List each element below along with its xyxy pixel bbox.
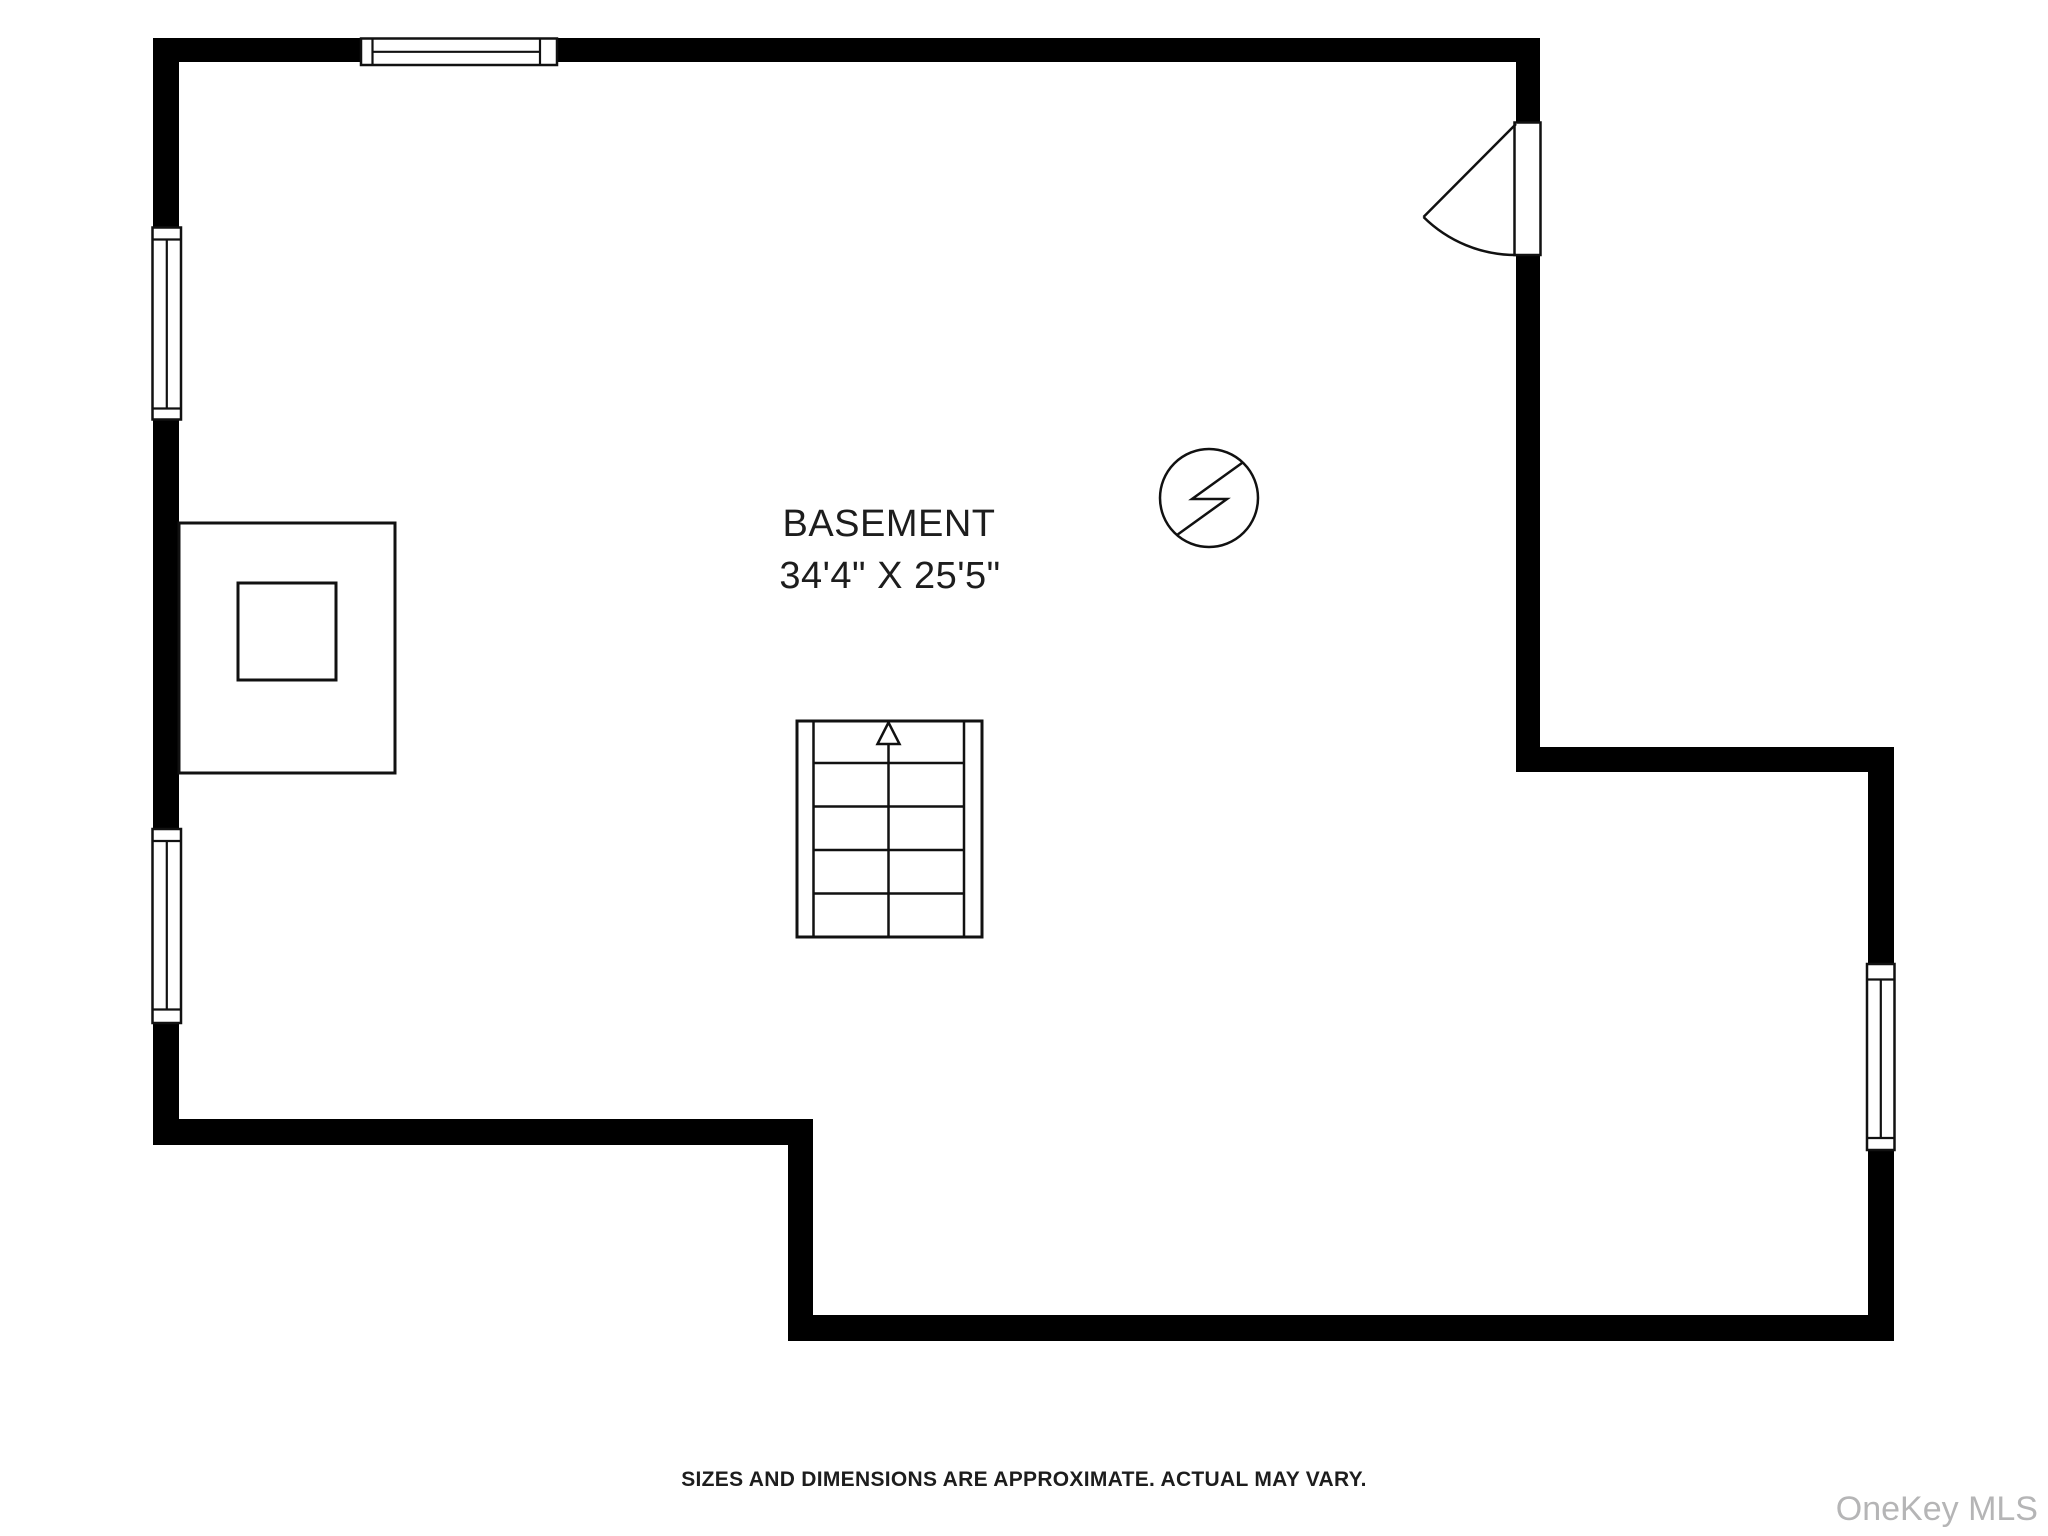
window-left-wall-upper-icon	[153, 228, 182, 420]
walls	[153, 38, 1894, 1341]
window-right-wall-icon	[1867, 964, 1895, 1150]
window-top-wall-icon	[361, 39, 557, 66]
floorplan-canvas: BASEMENT 34'4" X 25'5"	[0, 0, 2048, 1536]
floorplan-page: BASEMENT 34'4" X 25'5" SIZES AND DIMENSI…	[0, 0, 2048, 1536]
electric-panel-icon	[1160, 449, 1258, 547]
disclaimer-text: SIZES AND DIMENSIONS ARE APPROXIMATE. AC…	[0, 1468, 2048, 1492]
window-left-wall-lower-icon	[153, 829, 182, 1023]
watermark-onekey-mls: OneKey MLS	[1836, 1490, 2038, 1529]
room-label: BASEMENT	[782, 503, 995, 545]
room-dimensions: 34'4" X 25'5"	[779, 555, 1000, 597]
chimney-icon	[179, 523, 395, 773]
door-swing-icon	[1424, 123, 1541, 256]
staircase-icon	[797, 721, 982, 937]
